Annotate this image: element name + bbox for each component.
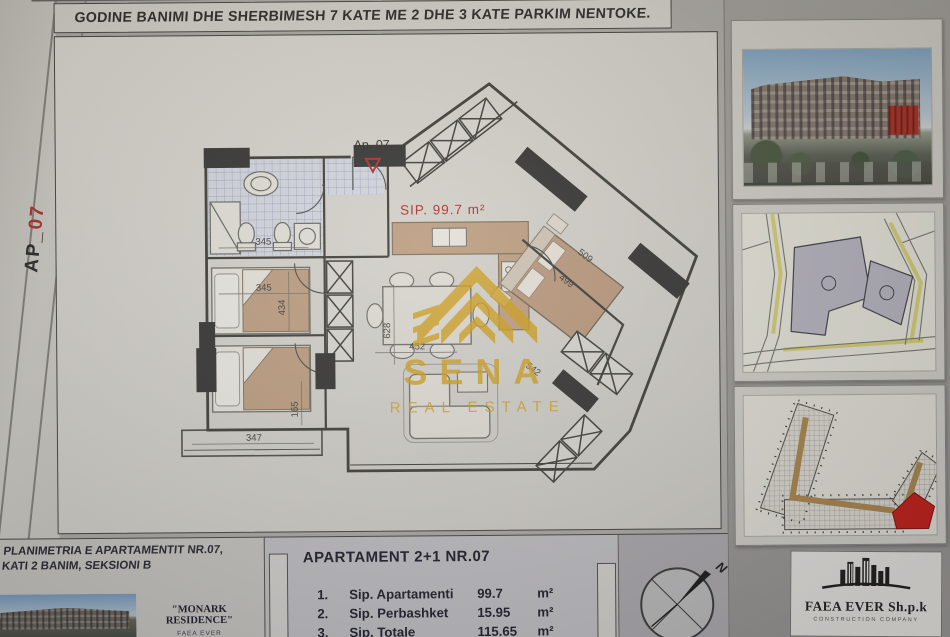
- svg-text:347: 347: [246, 433, 262, 444]
- compass-icon: N: [619, 534, 730, 637]
- parked-cars: [744, 161, 932, 183]
- row-value: 15.95: [477, 605, 510, 620]
- row-label: Sip. Perbashket: [349, 605, 448, 621]
- row-label: Sip. Apartamenti: [349, 586, 453, 602]
- sheet-title: GODINE BANIMI DHE SHERBIMESH 7 KATE ME 2…: [54, 5, 671, 26]
- svg-text:345: 345: [256, 283, 272, 294]
- side-label-number: 07: [25, 203, 48, 230]
- residence-block: "MONARK RESIDENCE" FAEA EVER: [138, 604, 260, 637]
- right-image-column: [723, 0, 950, 637]
- title-block: PLANIMETRIA E APARTAMENTIT NR.07, KATI 2…: [0, 533, 729, 637]
- row-value: 115.65: [477, 624, 517, 637]
- svg-text:434: 434: [277, 300, 288, 316]
- row-unit: m²: [537, 604, 553, 619]
- building-render-image: [742, 47, 933, 186]
- plan-caption-line2: KATI 2 BANIM, SEKSIONI B: [1, 558, 263, 575]
- residence-developer: FAEA EVER: [138, 630, 260, 637]
- company-name: FAEA EVER Sh.p.k: [791, 598, 941, 615]
- site-plan-card: [732, 202, 945, 382]
- spec-section: APARTAMENT 2+1 NR.07 1. Sip. Apartamenti…: [264, 534, 619, 637]
- residence-photo: [0, 594, 137, 637]
- compass-section: N: [618, 533, 729, 637]
- svg-text:345: 345: [255, 237, 271, 248]
- bedroom-1-bed: [212, 267, 311, 334]
- spec-row: 1. Sip. Apartamenti 99.7 m²: [265, 585, 618, 606]
- spec-row: 2. Sip. Perbashket 15.95 m²: [265, 604, 618, 625]
- watermark-brand: SENA: [403, 350, 551, 392]
- row-number: 1.: [317, 587, 328, 602]
- building-render-card: [731, 18, 944, 200]
- company-tagline: CONSTRUCTION COMPANY: [791, 616, 941, 623]
- apartment-side-label: AP_07: [21, 203, 49, 273]
- svg-text:165: 165: [290, 401, 301, 417]
- key-plan-card: [734, 384, 947, 546]
- unit-area-label: SIP. 99.7 m²: [400, 202, 485, 218]
- row-number: 3.: [317, 625, 328, 637]
- paper: AP_07 GODINE BANIMI DHE SHERBIMESH 7 KAT…: [0, 0, 950, 637]
- row-number: 2.: [317, 606, 328, 621]
- row-value: 99.7: [477, 586, 503, 601]
- row-unit: m²: [537, 585, 553, 600]
- floor-plan-panel: 345 345 434 347 452 628 165 499 542 509 …: [54, 31, 722, 534]
- row-unit: m²: [537, 623, 553, 637]
- skyline-logo-icon: [806, 556, 926, 593]
- spec-row: 3. Sip. Totale 115.65 m²: [265, 623, 618, 637]
- site-plan-image: [741, 211, 936, 373]
- compass-north-label: N: [713, 559, 729, 577]
- key-plan-image: [743, 393, 938, 537]
- row-label: Sip. Totale: [349, 624, 415, 637]
- residence-name: "MONARK RESIDENCE": [138, 604, 260, 627]
- caption-section: PLANIMETRIA E APARTAMENTIT NR.07, KATI 2…: [0, 537, 265, 637]
- sheet-title-bar: GODINE BANIMI DHE SHERBIMESH 7 KATE ME 2…: [54, 0, 672, 33]
- watermark-sub: REAL ESTATE: [390, 398, 566, 416]
- plan-caption: PLANIMETRIA E APARTAMENTIT NR.07, KATI 2…: [0, 538, 266, 575]
- side-label-prefix: AP_: [21, 229, 46, 274]
- floor-plan-drawing: 345 345 434 347 452 628 165 499 542 509 …: [55, 32, 723, 535]
- scanned-plan-sheet: AP_07 GODINE BANIMI DHE SHERBIMESH 7 KAT…: [0, 0, 950, 637]
- apartment-spec-title: APARTAMENT 2+1 NR.07: [303, 548, 490, 566]
- unit-marker-label: Ap. 07: [354, 138, 390, 152]
- company-logo-card: FAEA EVER Sh.p.k CONSTRUCTION COMPANY: [790, 550, 943, 637]
- svg-text:628: 628: [382, 323, 393, 339]
